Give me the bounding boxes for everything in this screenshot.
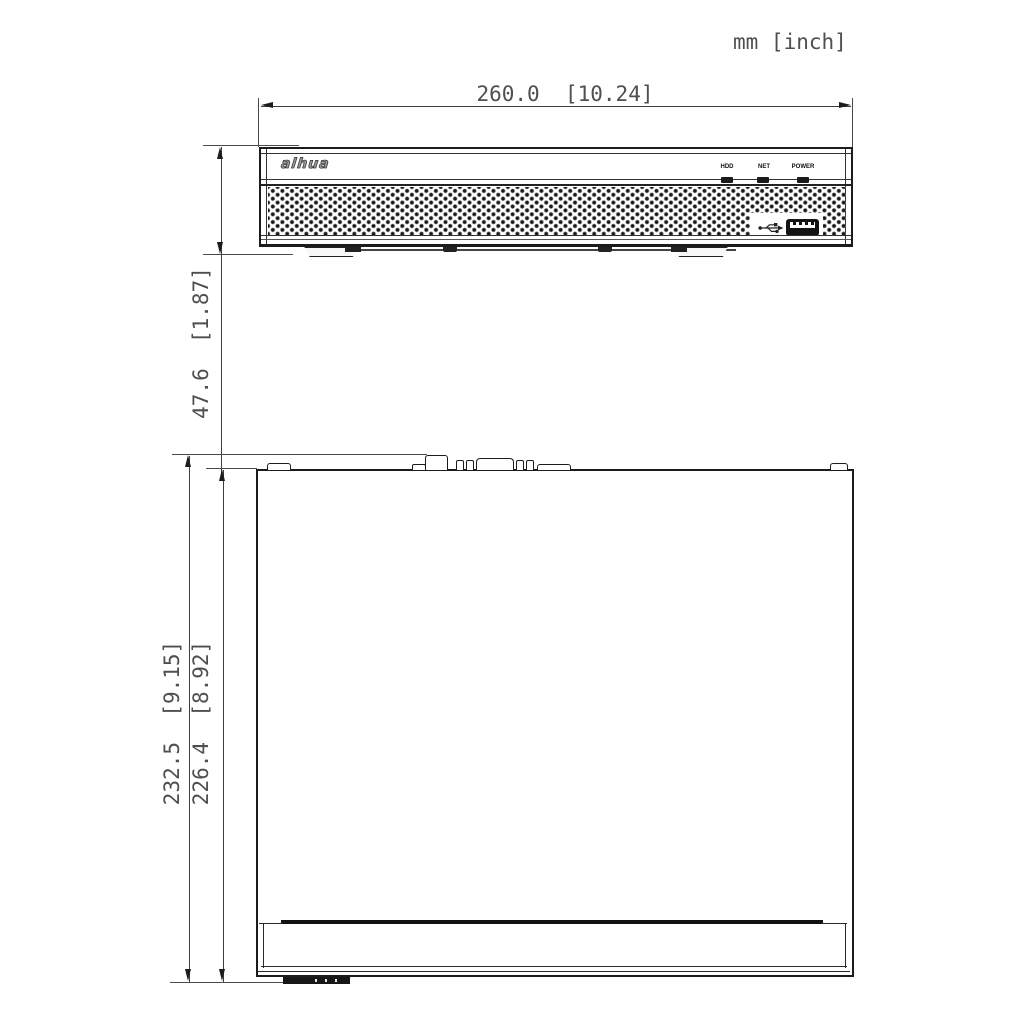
- height-dim-arrow-down: [217, 242, 223, 254]
- units-label: mm [inch]: [733, 30, 847, 54]
- front-bar-tick: [335, 979, 337, 982]
- depth-outer-arrow-up: [185, 455, 191, 467]
- net-led-icon: [757, 177, 769, 183]
- front-bar-tick: [315, 979, 317, 982]
- height-dim-line: [221, 147, 222, 477]
- usb-pin: [799, 222, 802, 225]
- bottom-tab: [443, 247, 457, 252]
- front-top-strip-line: [261, 153, 851, 154]
- width-dim-extension-right: [852, 98, 853, 147]
- depth-outer-arrow-down: [185, 969, 191, 981]
- height-dim-arrow-up: [217, 147, 223, 159]
- front-panel-bar: [283, 977, 350, 984]
- front-band-step-right: [821, 923, 847, 924]
- depth-dim-outer-label: 232.5 [9.15]: [160, 637, 184, 809]
- depth-inner-arrow-down: [219, 969, 225, 981]
- depth-dim-extension-bottom: [170, 982, 290, 983]
- depth-dim-line-inner: [223, 470, 224, 982]
- usb-pin: [805, 222, 808, 225]
- led-label-hdd: HDD: [721, 164, 734, 170]
- hdmi-connector: [537, 464, 571, 470]
- led-label-power: POWER: [792, 164, 815, 170]
- width-dim-extension-left: [258, 98, 259, 147]
- front-bottom-line-1: [261, 235, 851, 236]
- front-band-inner-left: [263, 923, 264, 968]
- front-band-lower-line-1: [261, 966, 847, 967]
- front-bottom-line-2: [261, 239, 851, 240]
- rear-jack: [456, 460, 464, 470]
- front-band-inner-right: [845, 923, 846, 968]
- led-label-net: NET: [758, 164, 770, 170]
- depth-inner-arrow-up: [219, 469, 225, 481]
- usb-port-icon: [786, 219, 819, 236]
- usb-pin: [811, 222, 814, 225]
- height-dim-extension-top: [203, 145, 299, 146]
- brand-logo: alhua: [280, 156, 330, 172]
- dimension-drawing: mm [inch] 260.0 [10.24] alhua HDD NET PO…: [0, 0, 1024, 1024]
- power-connector: [425, 455, 448, 470]
- hdd-led-icon: [721, 177, 733, 183]
- rear-jack: [466, 460, 474, 470]
- rear-screw-bump-left: [267, 463, 291, 470]
- left-foot-cap: [345, 247, 361, 252]
- front-view-chassis: alhua HDD NET POWER: [259, 147, 853, 247]
- depth-dim-extension-outer-top: [172, 454, 427, 455]
- front-separator-line-2: [261, 184, 851, 186]
- depth-dim-extension-inner-top: [206, 468, 257, 469]
- depth-dim-inner-label: 226.4 [8.92]: [189, 637, 213, 809]
- top-view-chassis: [256, 469, 854, 977]
- height-dim-label: 47.6 [1.87]: [189, 258, 213, 428]
- rear-connector-small-bump: [412, 464, 426, 470]
- usb-port-slot: [790, 222, 815, 228]
- rear-jack: [516, 460, 524, 470]
- right-foot-cap: [671, 247, 687, 252]
- width-dim-label: 260.0 [10.24]: [460, 82, 670, 106]
- bottom-tab: [598, 247, 612, 252]
- rear-screw-bump-right: [830, 463, 848, 470]
- width-dim-arrow-right: [839, 102, 851, 108]
- width-dim-line: [261, 106, 851, 107]
- front-band-edge: [281, 920, 823, 924]
- usb-icon: [758, 222, 784, 234]
- usb-pin: [793, 222, 796, 225]
- rear-jack: [526, 460, 534, 470]
- power-led-icon: [797, 177, 809, 183]
- vga-connector: [476, 458, 514, 470]
- front-band-lower-line-2: [258, 971, 850, 972]
- front-bar-tick: [325, 979, 327, 982]
- front-edge-line-left: [266, 149, 267, 244]
- width-dim-arrow-left: [261, 102, 273, 108]
- height-dim-extension-bottom: [203, 254, 293, 255]
